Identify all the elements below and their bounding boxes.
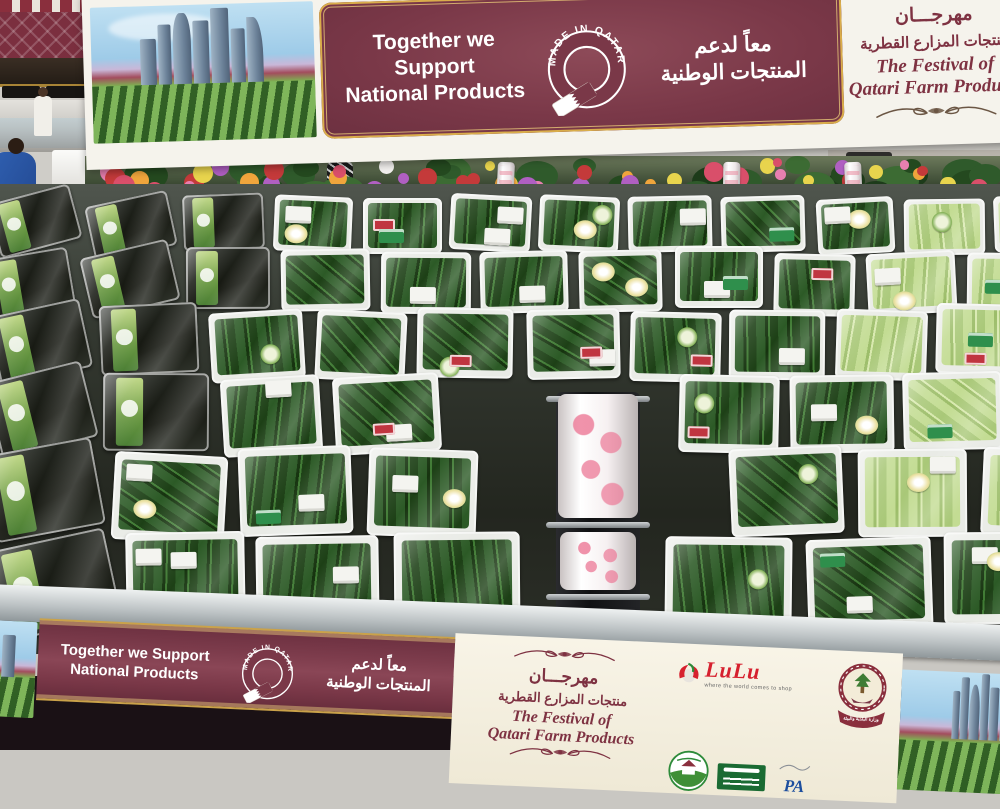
cucumber-tray — [773, 253, 856, 317]
flourish-icon — [509, 646, 620, 665]
cucumber-tray — [280, 248, 370, 311]
package-label — [931, 212, 951, 232]
cucumber-tray — [332, 372, 442, 456]
squash-tray — [834, 309, 927, 382]
package-label — [624, 278, 647, 298]
package-label — [968, 332, 993, 347]
support-line2: National Products — [335, 78, 536, 110]
cucumber-tray — [526, 308, 620, 380]
package-label — [677, 327, 697, 347]
support-text-english: Together we Support National Products — [59, 642, 209, 686]
pa-wordmark: PA — [776, 776, 811, 798]
package-label — [392, 475, 419, 493]
city-farm-photo-right — [897, 669, 1000, 795]
cucumber-tray — [186, 247, 270, 309]
package-label — [798, 463, 819, 484]
squash-tray — [902, 371, 1000, 451]
package-label — [485, 227, 512, 245]
flourish-icon — [871, 101, 1000, 123]
festival-title-arabic: مهرجـــان — [843, 1, 1000, 29]
support-text-english: Together we Support National Products — [333, 25, 535, 110]
support-line1: Together we Support — [333, 25, 534, 83]
squash-tray — [935, 303, 1000, 375]
cucumber-tray — [98, 302, 199, 376]
cucumber-tray — [273, 194, 353, 253]
support-arabic-line2: المنتجات الوطنية — [326, 672, 431, 696]
package-label — [855, 416, 878, 435]
support-arabic-line2: المنتجات الوطنية — [638, 56, 829, 89]
package-label — [723, 276, 748, 290]
cucumber-tray — [728, 444, 845, 537]
cucumber-tray — [729, 309, 826, 380]
sponsor-logos: LuLu where the world comes to shop وزارة… — [664, 653, 894, 803]
cucumber-tray — [578, 249, 663, 313]
cucumber-tray — [417, 307, 514, 378]
city-farm-photo-small — [0, 620, 38, 718]
package-label — [964, 353, 986, 366]
squash-tray — [993, 193, 1000, 252]
cucumber-tray — [363, 198, 442, 254]
package-label — [819, 553, 844, 568]
package-label — [811, 268, 833, 281]
package-label — [256, 509, 281, 524]
package-label — [927, 424, 952, 439]
cucumber-tray — [208, 309, 306, 385]
package-label — [450, 355, 472, 367]
cucumber-tray — [0, 437, 106, 544]
package-label — [810, 404, 836, 421]
cucumber-tray — [629, 311, 721, 383]
cucumber-tray — [0, 183, 83, 259]
support-banner-bottom: Together we Support National Products MA… — [36, 618, 455, 719]
package-label — [824, 207, 851, 225]
top-banner: Together we Support National Products MA… — [81, 0, 1000, 170]
dispenser-rod — [546, 594, 650, 600]
greenhouse-logo — [717, 763, 766, 791]
package-label — [298, 493, 325, 511]
made-in-qatar-icon: MADE IN QATAR — [533, 10, 640, 117]
package-label — [779, 348, 805, 365]
squash-tray — [858, 449, 967, 538]
cucumber-tray — [182, 192, 265, 251]
lulu-wordmark: LuLu — [705, 657, 794, 687]
plastic-bag-roll — [560, 532, 636, 590]
pa-logo: PA — [776, 758, 812, 798]
cucumber-tray — [314, 309, 407, 383]
support-banner-top: Together we Support National Products MA… — [319, 0, 845, 139]
festival-panel-bottom: مهرجـــان منتجات المزارع القطرية The Fes… — [449, 633, 903, 803]
package-label — [126, 464, 153, 482]
squash-tray — [903, 199, 984, 256]
made-in-qatar-icon: MADE IN QATAR — [232, 634, 303, 705]
package-label — [410, 287, 436, 304]
cucumber-tray — [538, 194, 620, 254]
festival-subtitle-arabic: منتجات المزارع القطرية — [844, 30, 1000, 53]
package-label — [135, 549, 161, 566]
package-label — [875, 268, 902, 286]
cucumber-tray — [943, 532, 1000, 625]
cucumber-tray — [479, 250, 568, 314]
festival-english-line2: Qatari Farm Products — [845, 74, 1000, 101]
festival-text-block: مهرجـــان منتجات المزارع القطرية The Fes… — [461, 644, 663, 793]
package-label — [285, 206, 312, 224]
package-label — [691, 354, 713, 367]
package-label — [379, 229, 404, 243]
lulu-mark-icon — [675, 661, 702, 688]
package-label — [985, 281, 1000, 295]
package-label — [687, 427, 709, 439]
cucumber-tray — [238, 445, 355, 537]
cucumber-tray — [449, 193, 532, 253]
package-label — [846, 596, 873, 614]
cucumber-tray — [815, 196, 895, 256]
package-label — [680, 209, 706, 227]
package-label — [520, 285, 546, 303]
cucumber-tray — [103, 372, 209, 451]
festival-panel-top: مهرجـــان منتجات المزارع القطرية The Fes… — [842, 0, 1000, 147]
package-label — [372, 423, 395, 436]
cucumber-tray — [675, 246, 763, 308]
package-label — [930, 457, 956, 474]
cucumber-tray — [789, 374, 894, 454]
lulu-logo: LuLu where the world comes to shop — [675, 655, 793, 692]
cucumber-tray — [678, 374, 779, 454]
plastic-bag-roll — [558, 394, 638, 518]
squash-tray — [980, 447, 1000, 540]
package-label — [264, 380, 291, 399]
package-label — [333, 566, 359, 583]
cucumber-tray — [720, 195, 805, 253]
ministry-logo: وزارة البلدية والبيئة — [831, 660, 892, 735]
package-label — [580, 347, 602, 359]
dispenser-rod — [546, 522, 650, 528]
support-text-arabic: معاً لدعم المنتجات الوطنية — [326, 653, 432, 697]
package-label — [497, 206, 524, 224]
city-farm-photo — [90, 1, 317, 144]
cucumber-tray — [627, 196, 712, 254]
package-label — [170, 552, 196, 569]
package-label — [769, 227, 794, 242]
cucumber-tray — [381, 251, 472, 314]
cucumber-tray — [220, 374, 323, 458]
bag-roll-dispenser — [546, 386, 650, 642]
pa-flourish-icon — [778, 763, 812, 773]
farms-logo — [667, 749, 711, 793]
cucumber-tray — [366, 448, 478, 540]
support-text-arabic: معاً لدعم المنتجات الوطنية — [638, 29, 830, 89]
